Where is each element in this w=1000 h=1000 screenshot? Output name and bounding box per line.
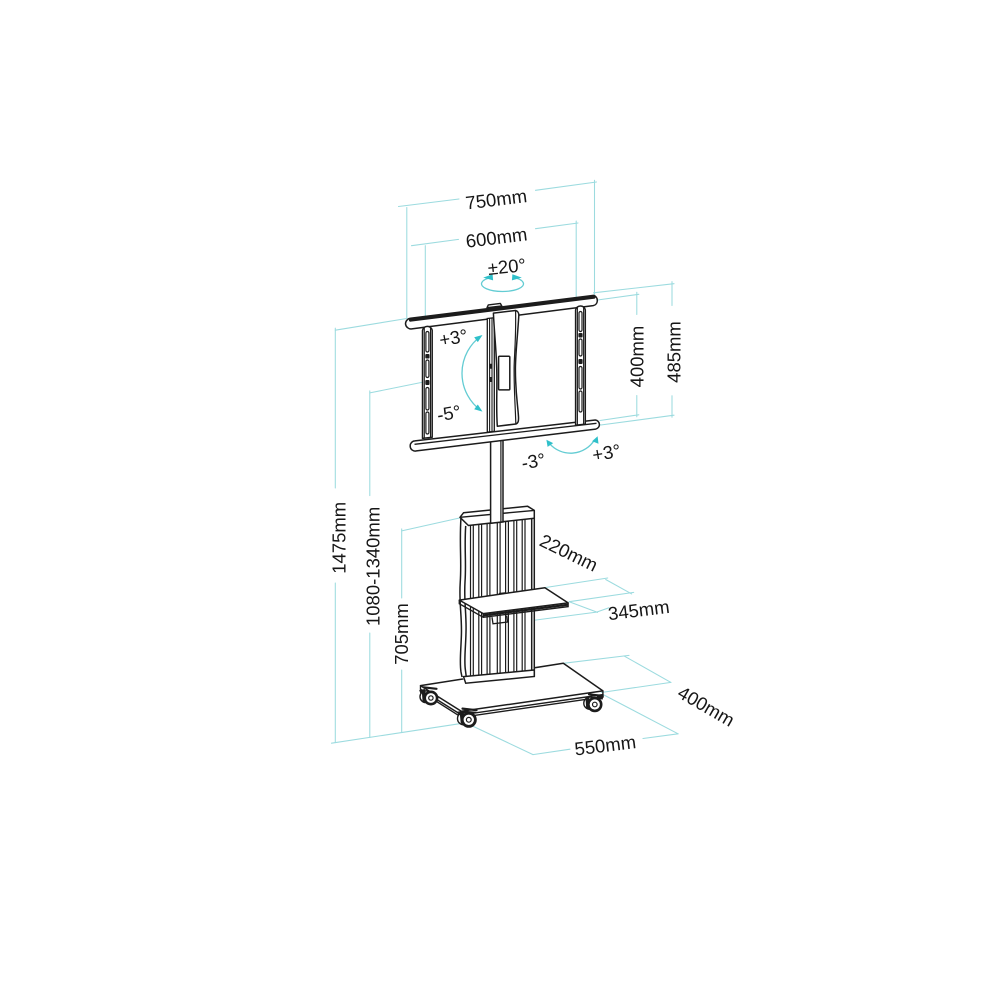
svg-text:-5°: -5° bbox=[435, 401, 462, 426]
svg-text:±20°: ±20° bbox=[487, 254, 527, 279]
svg-text:-3°: -3° bbox=[520, 449, 547, 474]
svg-text:705mm: 705mm bbox=[391, 603, 412, 665]
svg-text:1475mm: 1475mm bbox=[328, 502, 349, 574]
svg-text:400mm: 400mm bbox=[626, 326, 647, 388]
svg-text:485mm: 485mm bbox=[664, 321, 685, 383]
svg-text:1080-1340mm: 1080-1340mm bbox=[363, 507, 384, 626]
